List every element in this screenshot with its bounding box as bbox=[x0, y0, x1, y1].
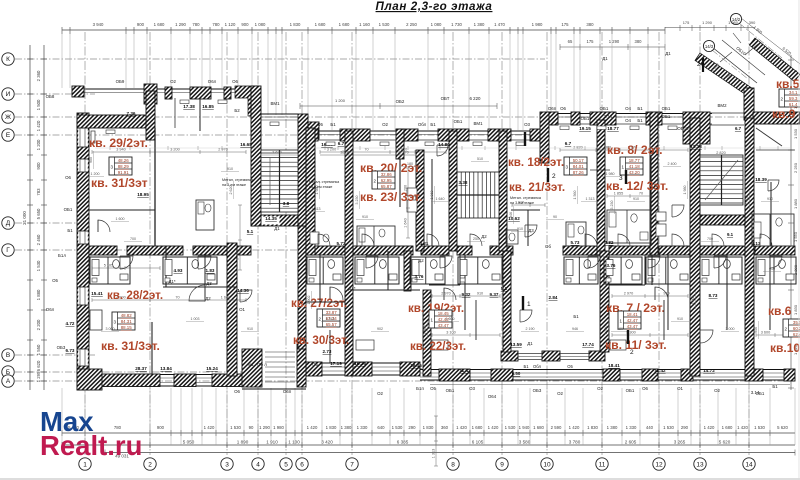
svg-text:12: 12 bbox=[655, 461, 663, 468]
svg-text:1 530: 1 530 bbox=[663, 425, 674, 430]
svg-text:18.77: 18.77 bbox=[629, 158, 641, 163]
svg-text:2 970: 2 970 bbox=[441, 292, 451, 296]
svg-text:Д1: Д1 bbox=[274, 226, 280, 231]
svg-text:Б1: Б1 bbox=[248, 362, 254, 367]
svg-text:19.15: 19.15 bbox=[579, 126, 591, 131]
svg-text:910: 910 bbox=[227, 167, 233, 171]
svg-text:1 420: 1 420 bbox=[456, 425, 467, 430]
svg-text:2: 2 bbox=[148, 461, 152, 468]
svg-text:на 3-ем этаже: на 3-ем этаже bbox=[309, 185, 332, 189]
svg-text:175: 175 bbox=[587, 39, 595, 44]
svg-text:О6: О6 bbox=[642, 386, 648, 391]
svg-text:1 600: 1 600 bbox=[446, 317, 455, 321]
svg-text:90: 90 bbox=[553, 215, 557, 219]
svg-text:8.73: 8.73 bbox=[709, 293, 718, 298]
svg-text:65.57: 65.57 bbox=[326, 322, 338, 327]
svg-text:390: 390 bbox=[749, 20, 756, 25]
svg-text:1 003: 1 003 bbox=[191, 317, 200, 321]
svg-text:2 250: 2 250 bbox=[793, 162, 798, 173]
svg-text:Е: Е bbox=[6, 132, 11, 139]
svg-text:О1: О1 bbox=[239, 307, 245, 312]
svg-text:4.82: 4.82 bbox=[605, 240, 614, 245]
svg-text:Б1: Б1 bbox=[430, 122, 436, 127]
svg-text:900: 900 bbox=[241, 22, 249, 27]
svg-text:Б1: Б1 bbox=[523, 364, 529, 369]
svg-text:5.1: 5.1 bbox=[247, 229, 254, 234]
svg-text:180: 180 bbox=[407, 162, 413, 166]
svg-text:1 530: 1 530 bbox=[392, 425, 403, 430]
svg-text:1 380: 1 380 bbox=[607, 425, 618, 430]
svg-text:9.37: 9.37 bbox=[490, 292, 499, 297]
svg-text:1: 1 bbox=[529, 136, 533, 143]
svg-text:И: И bbox=[6, 91, 11, 98]
svg-text:ОБ10: ОБ10 bbox=[677, 126, 689, 131]
svg-text:1 530: 1 530 bbox=[230, 425, 241, 430]
svg-text:Метал. стремянка: Метал. стремянка bbox=[510, 196, 542, 200]
svg-text:О2: О2 bbox=[170, 79, 176, 84]
svg-text:Ж: Ж bbox=[5, 114, 11, 121]
svg-text:1 420: 1 420 bbox=[569, 425, 580, 430]
svg-text:О6л: О6л bbox=[46, 307, 55, 312]
svg-text:1 902: 1 902 bbox=[307, 296, 311, 305]
svg-text:5: 5 bbox=[284, 461, 288, 468]
svg-text:640: 640 bbox=[377, 425, 385, 430]
svg-text:946: 946 bbox=[509, 212, 513, 218]
svg-text:О2: О2 bbox=[597, 386, 603, 391]
svg-text:1 550: 1 550 bbox=[36, 344, 41, 355]
svg-text:1 330: 1 330 bbox=[357, 425, 368, 430]
svg-text:13: 13 bbox=[696, 461, 704, 468]
svg-text:О6п: О6п bbox=[548, 106, 557, 111]
svg-text:13.84: 13.84 bbox=[160, 366, 172, 371]
svg-text:1 295: 1 295 bbox=[36, 371, 41, 382]
svg-text:1 560: 1 560 bbox=[604, 326, 608, 335]
svg-text:ВМ1: ВМ1 bbox=[473, 121, 483, 126]
svg-text:11: 11 bbox=[599, 461, 606, 468]
svg-text:1 640: 1 640 bbox=[436, 197, 445, 201]
svg-text:ОБ1: ОБ1 bbox=[600, 106, 609, 111]
svg-text:ОБ1: ОБ1 bbox=[446, 388, 455, 393]
svg-text:ОБ1: ОБ1 bbox=[662, 106, 671, 111]
svg-text:План 2,3-го этажа: План 2,3-го этажа bbox=[376, 0, 493, 13]
svg-text:1 730: 1 730 bbox=[451, 22, 462, 27]
svg-text:9: 9 bbox=[500, 461, 504, 468]
svg-text:18.39: 18.39 bbox=[755, 177, 767, 182]
svg-text:кв. 22/3эт.: кв. 22/3эт. bbox=[410, 340, 466, 353]
svg-text:1 600: 1 600 bbox=[116, 217, 125, 221]
svg-text:3 000: 3 000 bbox=[106, 327, 115, 331]
svg-text:59.3: 59.3 bbox=[789, 96, 798, 101]
svg-text:на 3-ем этаже: на 3-ем этаже bbox=[510, 201, 534, 205]
svg-text:ОБ9: ОБ9 bbox=[116, 79, 125, 84]
svg-text:32.86: 32.86 bbox=[381, 172, 393, 177]
svg-text:ОБ3: ОБ3 bbox=[57, 345, 66, 350]
svg-text:4.93: 4.93 bbox=[174, 268, 183, 273]
svg-text:2 460: 2 460 bbox=[36, 234, 41, 245]
svg-text:18.45: 18.45 bbox=[438, 311, 450, 316]
svg-text:28.37: 28.37 bbox=[135, 366, 147, 371]
svg-text:14/3: 14/3 bbox=[705, 44, 714, 49]
svg-text:Б1: Б1 bbox=[573, 314, 579, 319]
svg-text:700: 700 bbox=[130, 237, 136, 241]
svg-text:88.15: 88.15 bbox=[121, 325, 133, 330]
svg-text:3 230: 3 230 bbox=[355, 196, 359, 205]
svg-text:1 080: 1 080 bbox=[728, 20, 739, 25]
svg-text:14.36: 14.36 bbox=[237, 288, 249, 293]
svg-text:ОБ3: ОБ3 bbox=[533, 388, 542, 393]
svg-text:11.42: 11.42 bbox=[459, 368, 471, 373]
svg-text:910: 910 bbox=[663, 292, 669, 296]
svg-text:1 313: 1 313 bbox=[432, 449, 436, 459]
svg-text:1 313: 1 313 bbox=[326, 317, 335, 321]
svg-text:9.1: 9.1 bbox=[727, 232, 734, 237]
svg-text:Б1: Б1 bbox=[330, 122, 336, 127]
svg-text:2.84: 2.84 bbox=[549, 295, 558, 300]
svg-text:Г: Г bbox=[6, 247, 10, 254]
svg-text:1: 1 bbox=[83, 461, 87, 468]
svg-text:1 290: 1 290 bbox=[702, 20, 713, 25]
svg-text:Об л: Об л bbox=[257, 362, 267, 367]
svg-text:1 880: 1 880 bbox=[36, 289, 41, 300]
svg-text:О3: О3 bbox=[524, 122, 530, 127]
svg-text:946: 946 bbox=[572, 327, 578, 331]
svg-text:1 830: 1 830 bbox=[793, 304, 798, 315]
svg-text:2 400: 2 400 bbox=[236, 250, 240, 260]
svg-text:6.50: 6.50 bbox=[512, 371, 521, 376]
svg-text:1 680: 1 680 bbox=[722, 425, 733, 430]
svg-text:2 820: 2 820 bbox=[573, 146, 583, 150]
svg-text:1 830: 1 830 bbox=[326, 425, 337, 430]
svg-text:2 820: 2 820 bbox=[716, 151, 726, 155]
svg-text:5.73: 5.73 bbox=[571, 240, 580, 245]
svg-text:42.47: 42.47 bbox=[627, 318, 639, 323]
svg-text:2 200: 2 200 bbox=[36, 319, 41, 330]
svg-text:1 890: 1 890 bbox=[237, 440, 249, 445]
svg-text:6 220: 6 220 bbox=[470, 96, 482, 101]
svg-text:1 680: 1 680 bbox=[339, 22, 350, 27]
svg-text:3.38: 3.38 bbox=[459, 180, 468, 185]
svg-text:О6п: О6п bbox=[283, 389, 292, 394]
svg-text:18.41: 18.41 bbox=[608, 363, 620, 368]
svg-text:Метал. стремянка: Метал. стремянка bbox=[222, 178, 254, 182]
svg-text:6.73: 6.73 bbox=[66, 348, 75, 353]
svg-text:18.45: 18.45 bbox=[410, 363, 422, 368]
svg-text:О6: О6 bbox=[232, 79, 238, 84]
svg-text:Б1п: Б1п bbox=[416, 386, 424, 391]
svg-text:кв.9: кв.9 bbox=[772, 107, 796, 121]
svg-text:48.82: 48.82 bbox=[121, 313, 133, 318]
svg-text:Обл: Обл bbox=[533, 364, 541, 369]
svg-text:61.4: 61.4 bbox=[789, 102, 798, 107]
svg-text:175: 175 bbox=[561, 22, 569, 27]
svg-text:17.19: 17.19 bbox=[330, 361, 342, 366]
svg-text:1 530: 1 530 bbox=[793, 128, 798, 139]
svg-text:кв. 23/ 3эт.: кв. 23/ 3эт. bbox=[360, 190, 422, 204]
svg-text:7.36: 7.36 bbox=[127, 111, 136, 116]
svg-text:на 3-ем этаже: на 3-ем этаже bbox=[222, 183, 246, 187]
svg-text:2 190: 2 190 bbox=[526, 327, 535, 331]
svg-text:1 420: 1 420 bbox=[737, 425, 748, 430]
svg-text:ОБ1: ОБ1 bbox=[581, 116, 590, 121]
svg-text:О5: О5 bbox=[52, 278, 58, 283]
svg-text:5.73: 5.73 bbox=[337, 241, 346, 246]
svg-text:5.1: 5.1 bbox=[501, 286, 508, 291]
svg-text:Обл: Обл bbox=[418, 122, 427, 127]
svg-text:380: 380 bbox=[586, 22, 594, 27]
svg-text:3: 3 bbox=[619, 175, 623, 182]
svg-text:ОБ1: ОБ1 bbox=[626, 388, 635, 393]
svg-text:1 530: 1 530 bbox=[379, 22, 390, 27]
svg-text:15.41: 15.41 bbox=[91, 291, 103, 296]
svg-text:А: А bbox=[6, 378, 11, 385]
svg-text:6.7: 6.7 bbox=[338, 141, 345, 146]
svg-text:910: 910 bbox=[633, 197, 639, 201]
svg-text:3: 3 bbox=[225, 461, 229, 468]
svg-text:360: 360 bbox=[441, 425, 449, 430]
svg-text:3 780: 3 780 bbox=[569, 440, 581, 445]
svg-text:О6л: О6л bbox=[208, 79, 217, 84]
svg-text:900: 900 bbox=[36, 162, 41, 170]
svg-text:1 830: 1 830 bbox=[423, 425, 434, 430]
svg-text:1 470: 1 470 bbox=[494, 22, 505, 27]
svg-text:О5: О5 bbox=[317, 122, 323, 127]
svg-text:О6: О6 bbox=[65, 175, 71, 180]
svg-text:1 380: 1 380 bbox=[341, 425, 352, 430]
svg-text:О64: О64 bbox=[488, 394, 497, 399]
svg-text:1 313: 1 313 bbox=[586, 197, 595, 201]
svg-text:1 420: 1 420 bbox=[488, 425, 499, 430]
svg-text:180: 180 bbox=[617, 327, 623, 331]
svg-text:14.35: 14.35 bbox=[265, 216, 277, 221]
svg-text:3.76: 3.76 bbox=[607, 263, 616, 268]
svg-text:1 330: 1 330 bbox=[626, 425, 637, 430]
svg-text:Б1л: Б1л bbox=[58, 253, 66, 258]
svg-text:Б1: Б1 bbox=[637, 118, 643, 123]
svg-text:34.1: 34.1 bbox=[789, 90, 798, 95]
svg-text:43.47: 43.47 bbox=[627, 324, 639, 329]
svg-text:кв. 27/2эт.: кв. 27/2эт. bbox=[291, 297, 347, 310]
svg-text:290: 290 bbox=[408, 425, 416, 430]
svg-text:О2: О2 bbox=[382, 122, 388, 127]
svg-text:3 420: 3 420 bbox=[321, 440, 333, 445]
svg-text:2: 2 bbox=[552, 173, 556, 180]
svg-text:43.47: 43.47 bbox=[438, 323, 450, 328]
svg-text:33.87: 33.87 bbox=[326, 310, 338, 315]
svg-text:10: 10 bbox=[543, 461, 551, 468]
svg-text:1 290: 1 290 bbox=[259, 425, 270, 430]
svg-text:1 530: 1 530 bbox=[505, 425, 516, 430]
svg-text:780: 780 bbox=[192, 22, 200, 27]
svg-text:14.72: 14.72 bbox=[703, 368, 715, 373]
svg-text:1 200: 1 200 bbox=[91, 172, 100, 176]
svg-text:1 940: 1 940 bbox=[519, 425, 530, 430]
svg-text:11.42: 11.42 bbox=[654, 368, 666, 373]
svg-text:70: 70 bbox=[175, 296, 179, 300]
svg-text:440: 440 bbox=[646, 425, 654, 430]
svg-text:13.59: 13.59 bbox=[510, 342, 522, 347]
svg-text:14: 14 bbox=[745, 461, 753, 468]
svg-text:1 380: 1 380 bbox=[474, 22, 485, 27]
svg-text:250: 250 bbox=[473, 237, 479, 241]
svg-text:кв. 11/ 3эт.: кв. 11/ 3эт. bbox=[605, 338, 667, 352]
svg-text:1 290: 1 290 bbox=[175, 22, 186, 27]
svg-text:1 980: 1 980 bbox=[606, 172, 615, 176]
svg-text:Д1*: Д1* bbox=[168, 279, 175, 284]
svg-text:6: 6 bbox=[300, 461, 304, 468]
svg-text:Д2: Д2 bbox=[481, 234, 487, 239]
svg-text:кв. 21/3эт.: кв. 21/3эт. bbox=[509, 181, 565, 194]
svg-text:О5: О5 bbox=[312, 362, 318, 367]
svg-text:1 980: 1 980 bbox=[273, 425, 284, 430]
svg-text:1 680: 1 680 bbox=[315, 22, 326, 27]
svg-text:Д1: Д1 bbox=[527, 341, 533, 346]
svg-text:1 290: 1 290 bbox=[609, 39, 620, 44]
svg-text:1.83: 1.83 bbox=[206, 268, 215, 273]
svg-text:3 600: 3 600 bbox=[761, 331, 771, 335]
svg-text:783: 783 bbox=[36, 188, 41, 196]
svg-text:2 590: 2 590 bbox=[551, 425, 562, 430]
svg-text:О5: О5 bbox=[430, 386, 436, 391]
svg-text:Б1: Б1 bbox=[67, 228, 73, 233]
svg-text:910: 910 bbox=[362, 215, 368, 219]
svg-text:9.32: 9.32 bbox=[462, 292, 471, 297]
svg-text:3 230: 3 230 bbox=[610, 201, 614, 210]
svg-text:ВМ1: ВМ1 bbox=[270, 101, 280, 106]
svg-text:Д1: Д1 bbox=[665, 51, 671, 56]
svg-text:91.91: 91.91 bbox=[118, 170, 130, 175]
svg-text:900: 900 bbox=[157, 425, 165, 430]
svg-text:кв. 31/3эт.: кв. 31/3эт. bbox=[101, 339, 160, 353]
svg-text:кв. 28/2эт.: кв. 28/2эт. bbox=[107, 289, 163, 302]
svg-text:Д: Д bbox=[6, 220, 11, 227]
svg-text:84.01: 84.01 bbox=[573, 164, 585, 169]
svg-text:В: В bbox=[6, 352, 10, 359]
svg-text:900: 900 bbox=[89, 157, 93, 163]
svg-text:ОБ8: ОБ8 bbox=[46, 94, 55, 99]
svg-text:2 970: 2 970 bbox=[624, 292, 634, 296]
svg-text:43.20: 43.20 bbox=[629, 170, 641, 175]
svg-text:Д1: Д1 bbox=[602, 56, 608, 61]
svg-text:48.26: 48.26 bbox=[118, 158, 130, 163]
svg-text:ВМ2: ВМ2 bbox=[717, 103, 727, 108]
svg-text:2.73: 2.73 bbox=[323, 349, 332, 354]
svg-text:1 080: 1 080 bbox=[255, 22, 266, 27]
svg-text:910: 910 bbox=[477, 292, 483, 296]
svg-text:4.72: 4.72 bbox=[66, 321, 75, 326]
svg-text:6 385: 6 385 bbox=[397, 440, 409, 445]
svg-text:О3: О3 bbox=[469, 386, 475, 391]
svg-text:3 940: 3 940 bbox=[93, 22, 104, 27]
svg-text:1 313: 1 313 bbox=[430, 191, 434, 200]
svg-text:1: 1 bbox=[527, 301, 531, 308]
svg-text:5 650: 5 650 bbox=[36, 208, 41, 219]
svg-text:62.95: 62.95 bbox=[381, 178, 393, 183]
svg-text:1 530: 1 530 bbox=[36, 260, 41, 271]
svg-text:4: 4 bbox=[256, 461, 260, 468]
svg-text:380: 380 bbox=[635, 39, 643, 44]
svg-text:О2: О2 bbox=[714, 388, 720, 393]
svg-text:О4: О4 bbox=[625, 106, 631, 111]
svg-text:2: 2 bbox=[630, 349, 634, 356]
svg-text:2 400: 2 400 bbox=[745, 196, 749, 205]
svg-text:780: 780 bbox=[212, 22, 220, 27]
svg-text:кв. 12/ 3эт.: кв. 12/ 3эт. bbox=[606, 179, 668, 193]
svg-text:1 420: 1 420 bbox=[307, 425, 318, 430]
svg-text:1 640: 1 640 bbox=[404, 218, 408, 228]
svg-text:2 250: 2 250 bbox=[406, 22, 417, 27]
svg-text:3.76: 3.76 bbox=[415, 274, 424, 279]
svg-text:3.8: 3.8 bbox=[283, 201, 290, 206]
svg-text:17.38: 17.38 bbox=[183, 104, 195, 109]
svg-text:ОБ1: ОБ1 bbox=[64, 207, 73, 212]
svg-text:510: 510 bbox=[477, 157, 483, 161]
svg-text:5 050: 5 050 bbox=[183, 440, 195, 445]
svg-text:Д2: Д2 bbox=[418, 258, 424, 263]
svg-text:13.28: 13.28 bbox=[690, 144, 702, 149]
svg-text:21 000: 21 000 bbox=[22, 211, 27, 225]
svg-text:3 580: 3 580 bbox=[519, 440, 531, 445]
svg-text:87.26: 87.26 bbox=[573, 170, 585, 175]
svg-text:6.7: 6.7 bbox=[735, 126, 742, 131]
svg-text:Д3: Д3 bbox=[528, 228, 534, 233]
svg-text:1 530: 1 530 bbox=[754, 425, 765, 430]
svg-text:1 980: 1 980 bbox=[683, 186, 687, 195]
svg-text:65: 65 bbox=[568, 39, 573, 44]
svg-text:290: 290 bbox=[681, 425, 689, 430]
svg-text:1 420: 1 420 bbox=[704, 425, 715, 430]
svg-text:О6: О6 bbox=[234, 389, 240, 394]
svg-text:О2: О2 bbox=[557, 391, 563, 396]
svg-text:90: 90 bbox=[249, 425, 254, 430]
svg-text:16.85: 16.85 bbox=[202, 104, 214, 109]
svg-text:6.7: 6.7 bbox=[565, 141, 572, 146]
svg-text:Метал. стремянка: Метал. стремянка bbox=[309, 180, 339, 184]
svg-text:6 620: 6 620 bbox=[36, 360, 41, 371]
svg-text:5 620: 5 620 bbox=[777, 425, 788, 430]
svg-text:700: 700 bbox=[707, 237, 713, 241]
svg-text:О5: О5 bbox=[567, 364, 573, 369]
svg-text:Об: Об bbox=[545, 244, 551, 249]
svg-text:1 830: 1 830 bbox=[290, 22, 301, 27]
svg-text:15.24: 15.24 bbox=[206, 366, 218, 371]
svg-text:1 420: 1 420 bbox=[36, 120, 41, 131]
svg-text:175: 175 bbox=[683, 20, 690, 25]
svg-text:ОБ2: ОБ2 bbox=[396, 99, 405, 104]
svg-text:65.87: 65.87 bbox=[381, 184, 393, 189]
svg-text:5 620: 5 620 bbox=[719, 440, 731, 445]
svg-text:6 105: 6 105 bbox=[472, 440, 484, 445]
svg-text:2 620: 2 620 bbox=[272, 151, 282, 155]
svg-text:1 200: 1 200 bbox=[335, 98, 346, 103]
svg-text:18.41: 18.41 bbox=[627, 312, 639, 317]
svg-text:1 200: 1 200 bbox=[36, 139, 41, 150]
svg-text:910: 910 bbox=[767, 197, 773, 201]
svg-text:К: К bbox=[6, 56, 10, 63]
svg-text:кв.10: кв.10 bbox=[770, 341, 800, 355]
svg-text:18.95: 18.95 bbox=[137, 192, 149, 197]
svg-text:1 500: 1 500 bbox=[36, 99, 41, 110]
svg-text:1 830: 1 830 bbox=[587, 425, 598, 430]
svg-text:1 680: 1 680 bbox=[472, 425, 483, 430]
svg-text:кв. 8/ 2эт.: кв. 8/ 2эт. bbox=[607, 143, 663, 157]
svg-text:900: 900 bbox=[137, 22, 145, 27]
svg-text:1 120: 1 120 bbox=[225, 22, 236, 27]
svg-text:41.18: 41.18 bbox=[629, 164, 641, 169]
svg-text:1 080: 1 080 bbox=[431, 22, 442, 27]
svg-text:902: 902 bbox=[377, 327, 383, 331]
svg-text:Б1: Б1 bbox=[637, 106, 643, 111]
svg-text:3.14: 3.14 bbox=[751, 390, 760, 395]
